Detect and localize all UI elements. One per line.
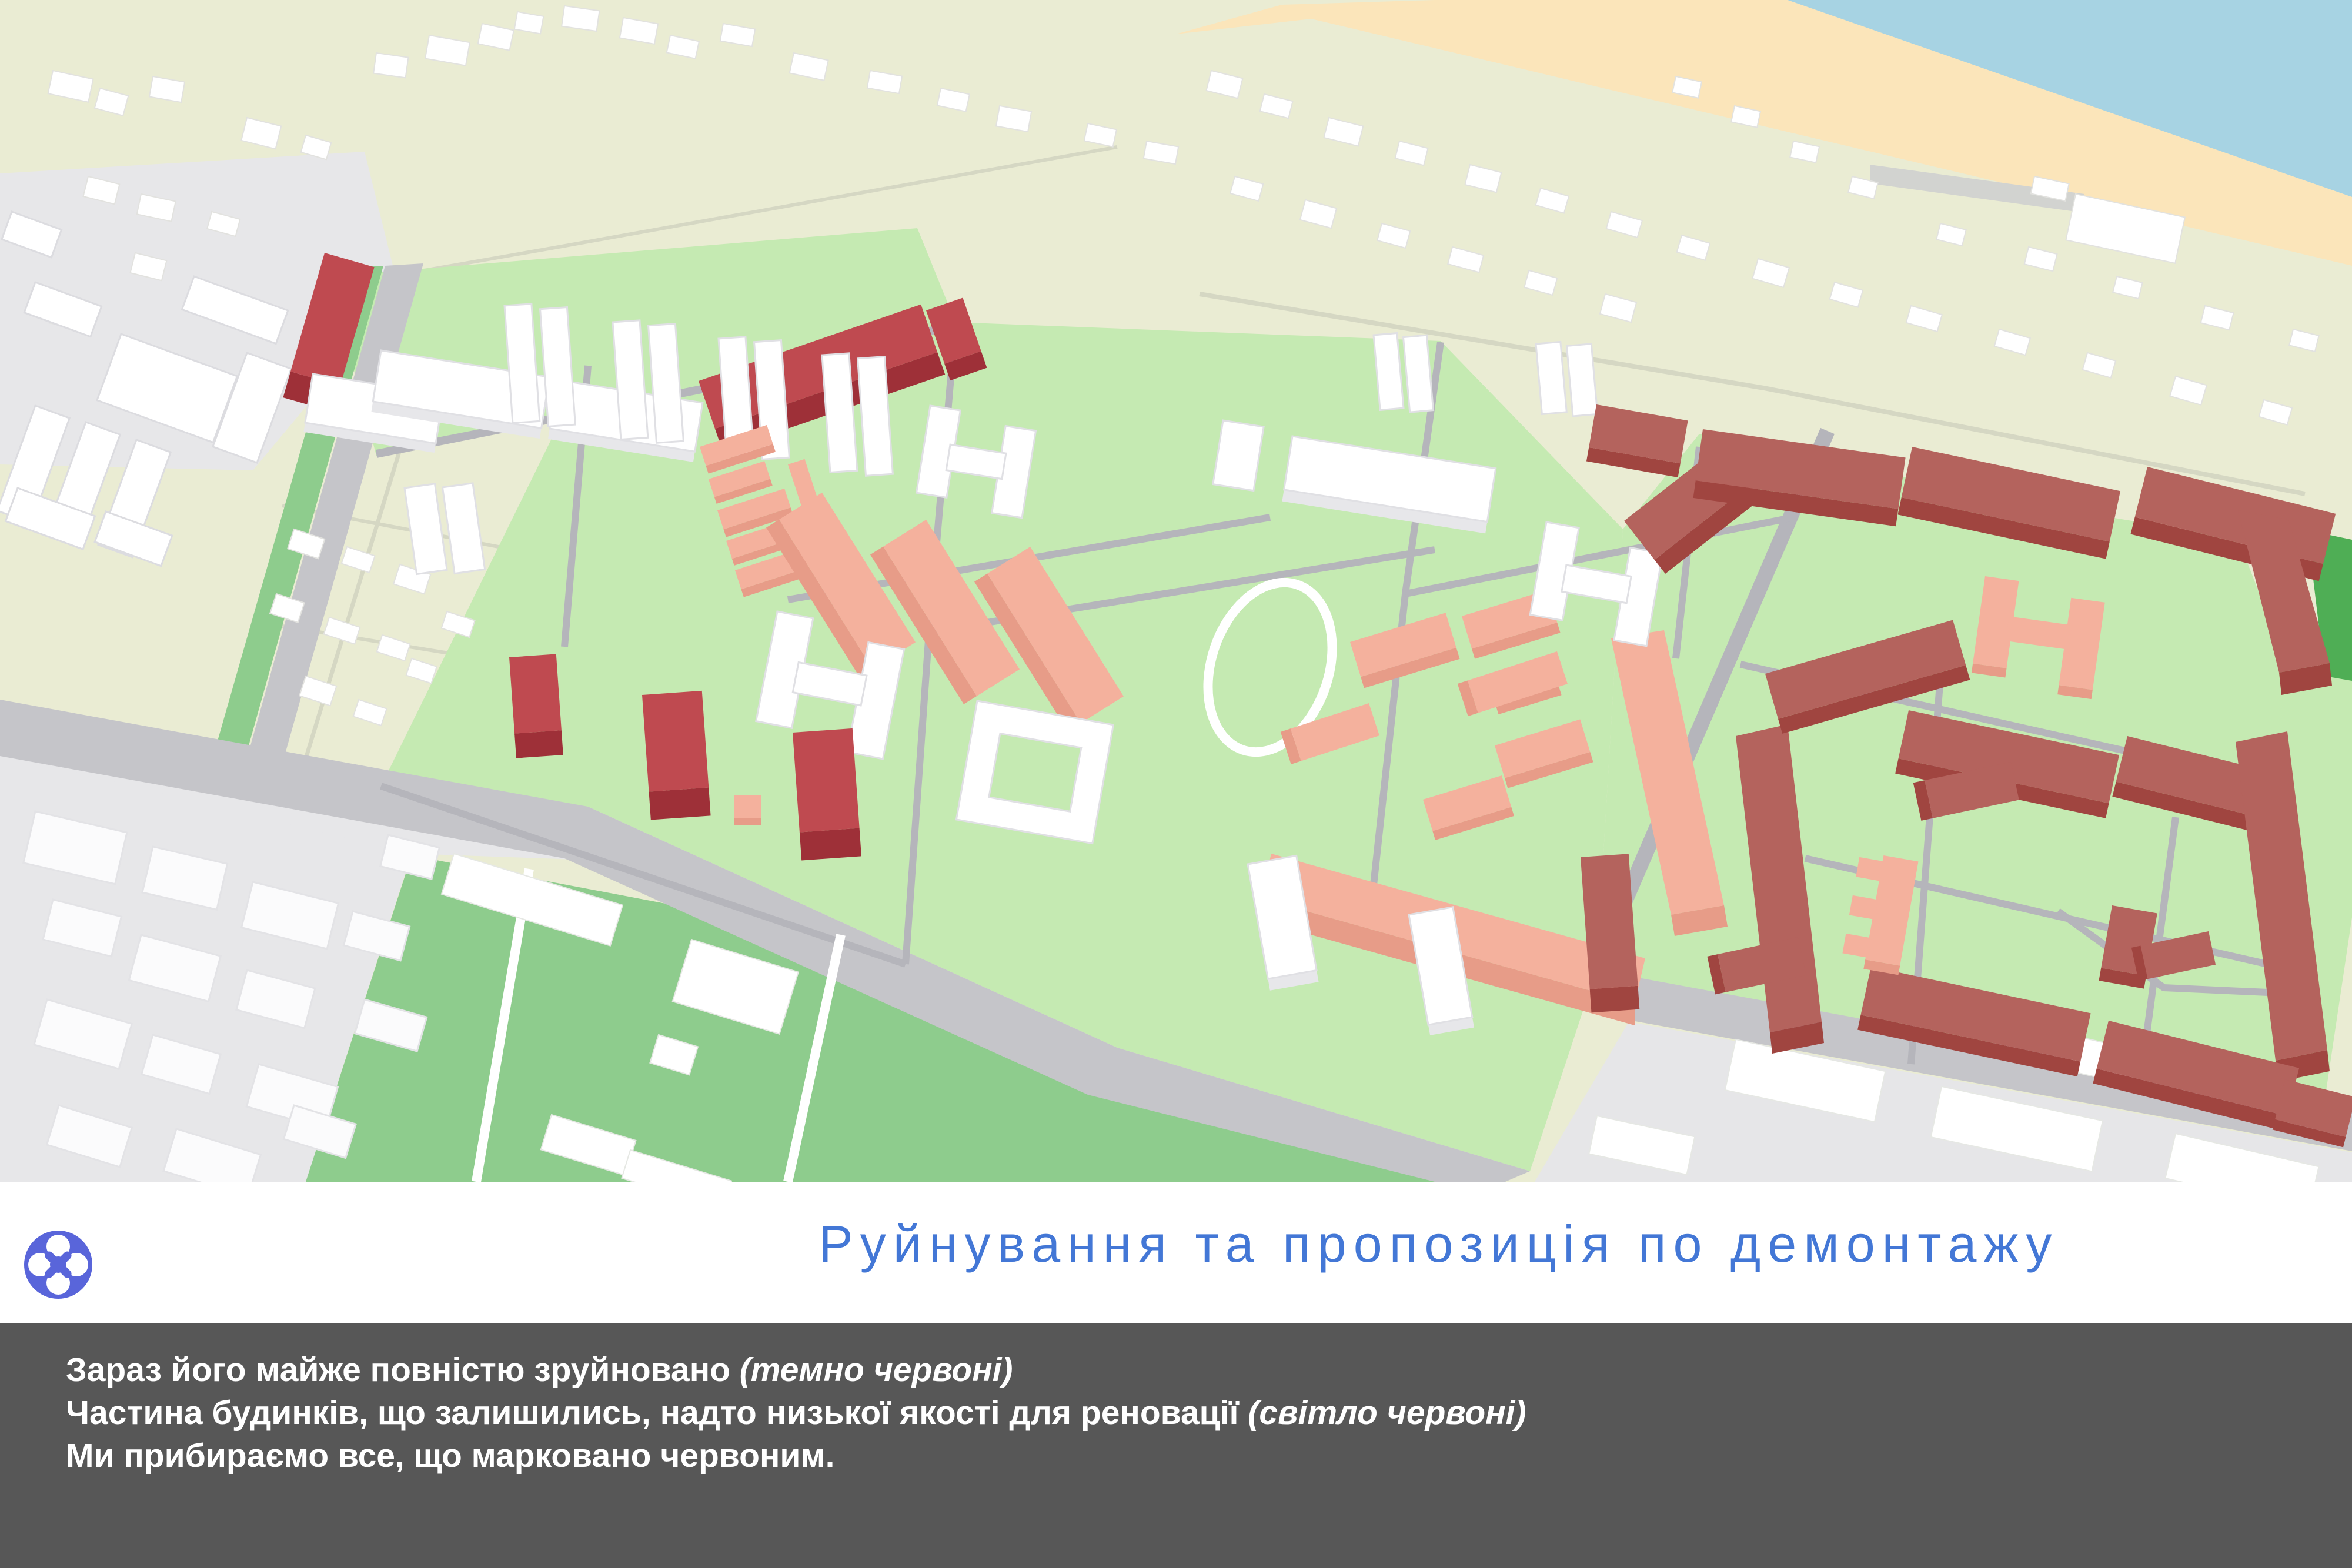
logo-icon [24,1230,93,1299]
footer-line-3: Ми прибираємо все, що марковано червоним… [66,1435,2352,1477]
page-title: Руйнування та пропозиція по демонтажу [818,1216,2059,1273]
map-canvas [0,0,2352,1182]
footer-line-1-note: (темно червоні) [740,1351,1013,1389]
footer: Зараз його майже повністю зруйновано (те… [0,1323,2352,1568]
footer-line-1: Зараз його майже повністю зруйновано (те… [66,1349,2352,1392]
slide: Руйнування та пропозиція по демонтажу За… [0,0,2352,1568]
footer-line-2-note: (світло червоні) [1248,1394,1526,1432]
masterplan-map [0,0,2352,1182]
footer-line-1-text: Зараз його майже повністю зруйновано [66,1351,740,1389]
footer-line-2-text: Частина будинків, що залишились, надто н… [66,1394,1248,1432]
footer-line-3-text: Ми прибираємо все, що марковано червоним… [66,1437,834,1475]
footer-line-2: Частина будинків, що залишились, надто н… [66,1392,2352,1435]
